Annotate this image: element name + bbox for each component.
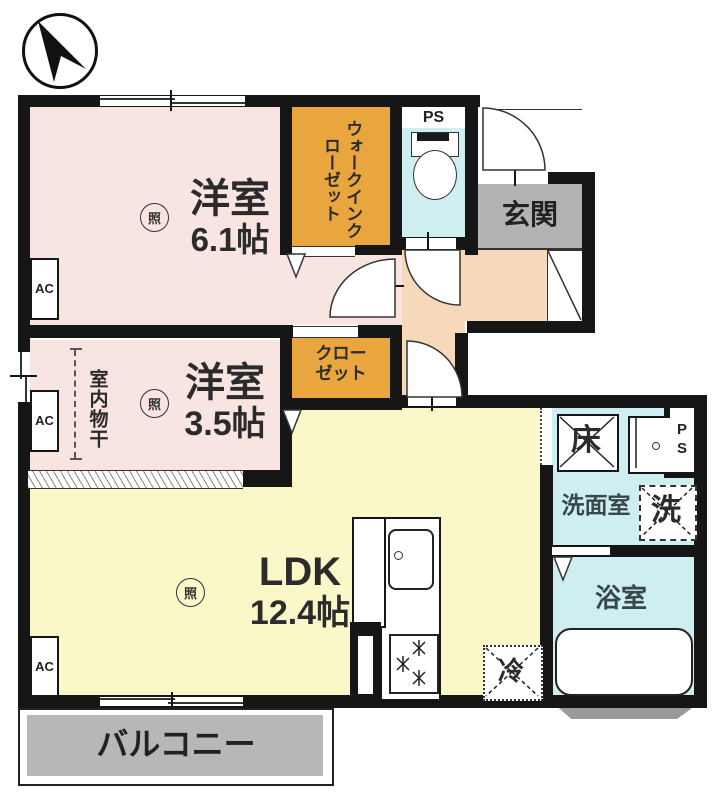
- balcony-label: バルコニー: [32, 722, 320, 766]
- fridge-label: 冷: [485, 647, 537, 695]
- wall: [465, 95, 478, 255]
- sliding-door: [28, 470, 243, 489]
- hall-ldk-door-arc: [406, 341, 463, 398]
- drying-pole-end: [70, 458, 82, 460]
- wall: [18, 95, 480, 107]
- drying-pole-line: [74, 350, 78, 458]
- floor-storage-label: 床: [559, 416, 613, 466]
- entrance-door-arc: [482, 107, 546, 172]
- kitchen-stove: [389, 634, 439, 694]
- shoe-cabinet: [547, 250, 584, 323]
- wall: [694, 395, 707, 708]
- closet-label-line1: クロー: [292, 343, 390, 363]
- wall: [18, 325, 293, 338]
- bathroom-label: 浴室: [558, 583, 684, 613]
- wall: [548, 172, 594, 184]
- wall: [243, 470, 292, 487]
- ac-unit: AC: [30, 390, 59, 452]
- ldk-size: 12.4帖: [210, 593, 390, 633]
- closet-door-opening: [293, 326, 358, 338]
- bedroom2-size: 3.5帖: [125, 404, 325, 444]
- window-left: [17, 352, 30, 402]
- kitchen-wall-stub: [350, 622, 381, 698]
- washroom-doorway: [540, 408, 552, 465]
- toilet-lid: [417, 133, 449, 141]
- drying-label: 室内物干: [84, 356, 110, 462]
- faucet-dot: [652, 442, 660, 450]
- window-tick: [170, 90, 172, 111]
- ps-top-label: PS: [402, 108, 465, 127]
- ceiling-light-icon: 照: [176, 578, 205, 607]
- bathroom-door-opening: [552, 547, 610, 555]
- fridge-box: 冷: [483, 645, 543, 701]
- wall: [467, 321, 595, 333]
- toilet-door-opening: [406, 238, 456, 249]
- stove-burners-icon: [391, 636, 437, 692]
- ac-unit: AC: [30, 258, 59, 320]
- sink-faucet-dot: [394, 551, 403, 560]
- bedroom1-door-arc: [328, 259, 397, 319]
- compass-north-icon: [22, 13, 98, 89]
- bath-folding-door-icon: [553, 556, 573, 582]
- wall: [355, 245, 402, 255]
- washer-label: 洗: [641, 487, 691, 535]
- door-tick: [427, 232, 429, 252]
- toilet-bowl: [413, 150, 457, 200]
- hallway-arm: [465, 250, 548, 321]
- genkan-label: 玄関: [478, 198, 582, 232]
- bathtub: [555, 628, 693, 696]
- floor-plan: 床 PS 洗 冷 AC AC AC 照 照 照: [0, 0, 720, 800]
- washer-box: 洗: [639, 485, 697, 541]
- wic-label: ウォークインクローゼット: [298, 114, 384, 244]
- bath-step-shadow: [556, 708, 695, 719]
- floor-storage-box: 床: [557, 414, 619, 472]
- washroom-label: 洗面室: [551, 492, 641, 518]
- wall: [390, 95, 402, 255]
- ldk-label: LDK: [210, 549, 390, 595]
- wall: [582, 172, 595, 333]
- compass-needle-icon: [25, 16, 95, 86]
- window-top: [100, 96, 245, 106]
- window-tick: [10, 375, 37, 377]
- toilet-door-arc: [405, 250, 461, 306]
- ac-unit: AC: [30, 636, 59, 697]
- drying-pole-end: [70, 348, 82, 350]
- washbasin: [628, 416, 672, 474]
- ps-side-label: PS: [670, 408, 694, 472]
- balcony: バルコニー: [18, 708, 334, 786]
- kitchen-sink: [388, 529, 434, 590]
- closet-label-line2: ゼット: [292, 363, 390, 383]
